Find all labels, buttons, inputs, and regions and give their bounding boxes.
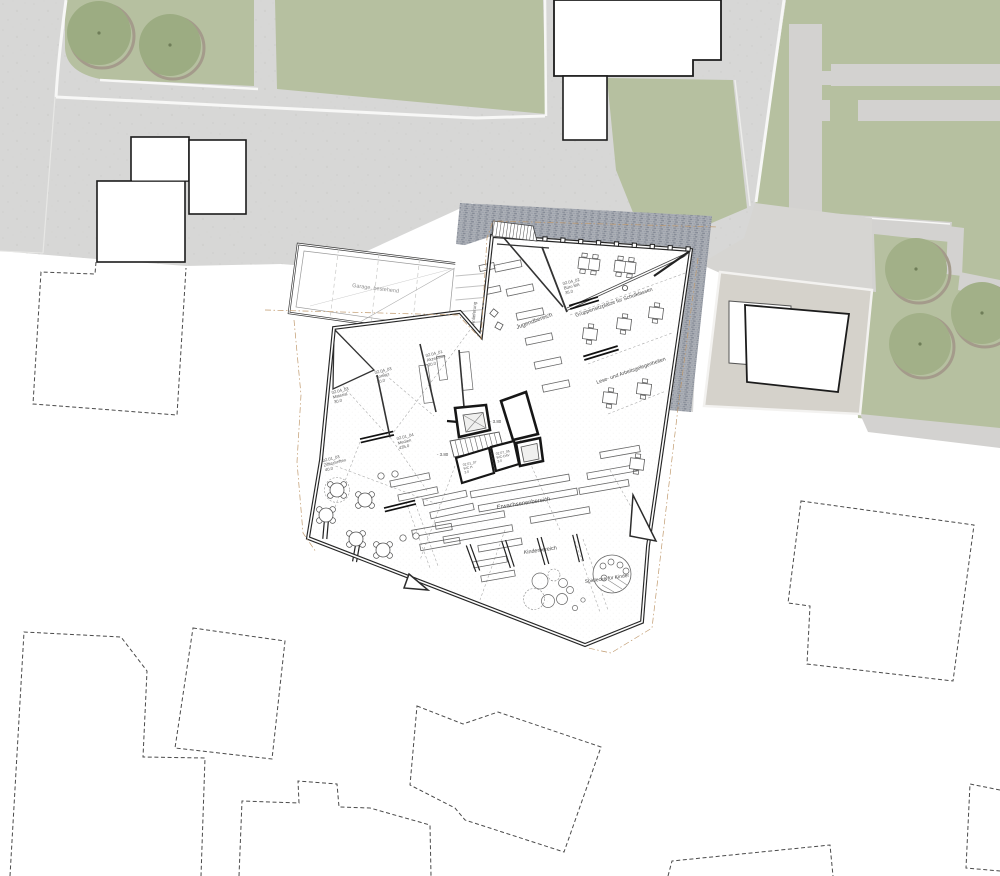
- svg-text:- 3.80: - 3.80: [437, 452, 449, 457]
- svg-text:- 3.80: - 3.80: [490, 419, 502, 424]
